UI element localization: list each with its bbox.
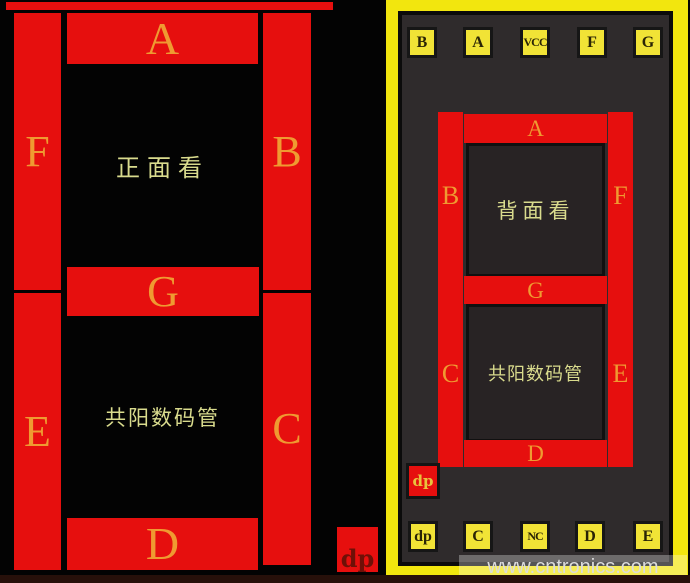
back-segment-c-label: C xyxy=(442,361,459,387)
front-dp-segment: dp xyxy=(337,527,378,572)
front-segment-g: G xyxy=(67,267,259,316)
back-segment-f: F xyxy=(608,112,633,280)
pin-bottom-nc-label: NC xyxy=(527,529,542,544)
pin-top-f-label: F xyxy=(587,34,597,52)
pin-bottom-c-label: C xyxy=(472,528,484,546)
back-segment-a: A xyxy=(464,114,607,143)
pin-top-g-label: G xyxy=(642,34,654,52)
front-view-title: 正面看 xyxy=(67,64,258,267)
pin-top-f: F xyxy=(577,27,607,58)
pin-top-a: A xyxy=(463,27,493,58)
back-dp-segment: dp xyxy=(406,463,440,499)
pin-top-b: B xyxy=(407,27,437,58)
pin-bottom-d-label: D xyxy=(584,528,596,546)
back-segment-g: G xyxy=(464,276,607,304)
front-segment-f-label: F xyxy=(25,130,49,174)
pin-bottom-dp-label: dp xyxy=(414,528,432,546)
back-segment-g-label: G xyxy=(527,279,544,302)
front-segment-c: C xyxy=(263,293,311,565)
back-segment-a-label: A xyxy=(527,117,544,140)
bottom-edge-strip xyxy=(0,575,690,583)
back-view-title: 背面看 xyxy=(466,143,605,277)
front-type-label: 共阳数码管 xyxy=(67,316,258,518)
pin-top-g: G xyxy=(633,27,663,58)
front-segment-g-label: G xyxy=(147,270,179,314)
pin-top-a-label: A xyxy=(472,34,484,52)
pin-top-vcc: VCC xyxy=(520,27,550,58)
back-dp-label: dp xyxy=(413,472,434,490)
back-segment-e: E xyxy=(608,280,633,467)
front-segment-b: B xyxy=(263,13,311,290)
front-top-strip xyxy=(6,2,333,10)
pin-top-b-label: B xyxy=(417,34,428,52)
front-dp-label: dp xyxy=(341,546,375,572)
pin-bottom-c: C xyxy=(463,521,493,552)
back-segment-c: C xyxy=(438,280,463,467)
pin-bottom-nc: NC xyxy=(520,521,550,552)
pin-bottom-e: E xyxy=(633,521,663,552)
front-segment-a-label: A xyxy=(146,16,179,62)
pin-top-vcc-label: VCC xyxy=(524,35,547,50)
front-segment-d-label: D xyxy=(146,521,179,567)
front-segment-e-label: E xyxy=(24,410,51,454)
front-segment-a: A xyxy=(67,13,258,64)
front-segment-e: E xyxy=(14,293,61,570)
back-segment-f-label: F xyxy=(613,183,627,209)
front-segment-c-label: C xyxy=(272,407,301,451)
pin-bottom-e-label: E xyxy=(643,528,654,546)
back-segment-e-label: E xyxy=(613,361,629,387)
back-segment-d: D xyxy=(464,440,607,467)
seven-segment-pinout-diagram: A F B 正面看 G E C 共阳数码管 D dp B A VCC F G B… xyxy=(0,0,690,583)
back-segment-b-label: B xyxy=(442,183,459,209)
back-type-label: 共阳数码管 xyxy=(466,304,605,442)
front-segment-d: D xyxy=(67,518,258,570)
pin-bottom-d: D xyxy=(575,521,605,552)
back-segment-b: B xyxy=(438,112,463,280)
front-segment-b-label: B xyxy=(272,130,301,174)
back-segment-d-label: D xyxy=(527,442,544,465)
front-segment-f: F xyxy=(14,13,61,290)
pin-bottom-dp: dp xyxy=(408,521,438,552)
